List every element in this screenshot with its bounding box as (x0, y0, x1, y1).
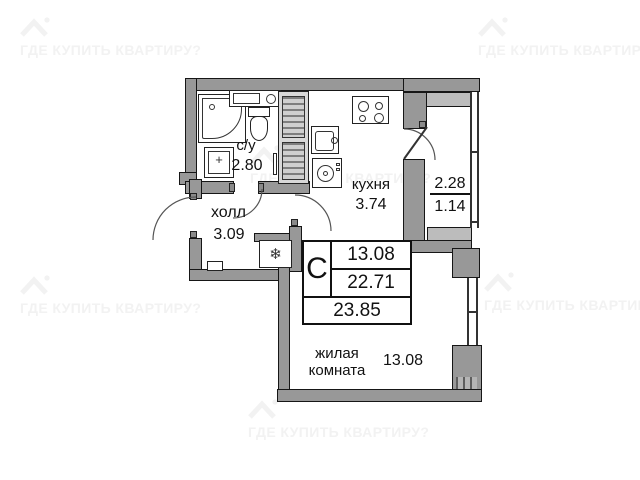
living-room-area: 13.08 (381, 352, 425, 370)
stamp-apartment-area: 22.71 (332, 270, 410, 298)
entrance-door-arc (153, 197, 196, 240)
bathroom-area: 2.80 (226, 157, 268, 175)
balcony-door-arc (404, 129, 435, 160)
living-room-label-line1: жилая (292, 346, 382, 363)
living-room-label: жилая комната (292, 346, 382, 380)
hall-area: 3.09 (208, 226, 250, 244)
bathroom-label: с/у (228, 138, 264, 155)
balcony-area: 2.28 (431, 175, 469, 193)
apartment-type: С (304, 242, 332, 298)
living-room-label-line2: комната (292, 363, 382, 380)
stamp-living-area: 13.08 (332, 242, 410, 270)
stamp-total-area: 23.85 (304, 298, 410, 323)
kitchen-label: кухня (345, 177, 397, 194)
floor-plan-page: ГДЕ КУПИТЬ КВАРТИРУ? ГДЕ КУПИТЬ КВАРТИРУ… (0, 0, 640, 480)
apartment-stamp: С 13.08 22.71 23.85 (302, 240, 412, 325)
balcony-fraction-line (430, 193, 470, 195)
kitchen-area: 3.74 (349, 196, 393, 214)
balcony-door-leaf (404, 127, 427, 159)
hall-label: холл (206, 204, 251, 222)
kitchen-door-arc (295, 195, 331, 231)
balcony-area-reduced: 1.14 (431, 198, 469, 216)
